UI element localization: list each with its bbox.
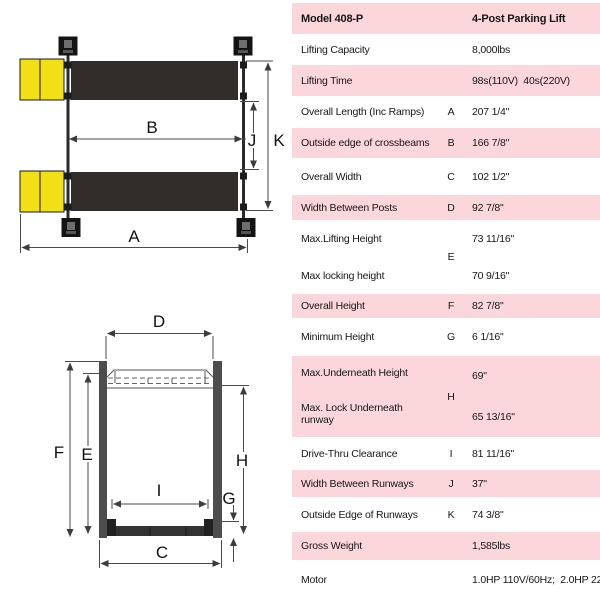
- spec-sheet: B J K A D: [0, 0, 600, 600]
- spec-label: Overall Height: [292, 300, 437, 312]
- post-bottom-left: [62, 218, 81, 237]
- spec-value: 1,585lbs: [465, 540, 600, 552]
- spec-value: 98s(110V) 40s(220V): [465, 75, 600, 87]
- table-row: Lifting Time 98s(110V) 40s(220V): [292, 65, 600, 96]
- spec-letter: F: [437, 300, 465, 312]
- spec-value: 207 1/4": [465, 106, 600, 118]
- table-row: Lifting Capacity 8,000lbs: [292, 34, 600, 65]
- spec-value: 92 7/8": [465, 202, 600, 214]
- front-post-right: [213, 361, 222, 538]
- dim-label-a: A: [128, 227, 140, 246]
- post-top-left: [59, 37, 78, 56]
- post-top-right: [234, 37, 253, 56]
- yellow-ramp-upper: [20, 59, 64, 100]
- table-row: Outside Edge of Runways K 74 3/8": [292, 497, 600, 532]
- spec-letter: J: [437, 478, 465, 490]
- spec-value: 73 11/16": [472, 233, 600, 245]
- spec-value: 70 9/16": [472, 270, 600, 282]
- runway-upper: [71, 61, 238, 100]
- front-post-left: [99, 361, 107, 538]
- front-view-diagram: D F: [0, 300, 290, 580]
- dim-label-f: F: [54, 443, 64, 462]
- dim-label-j: J: [248, 131, 257, 150]
- spec-letter: G: [437, 331, 465, 343]
- spec-letter: A: [437, 106, 465, 118]
- table-row: Outside edge of crossbeams B 166 7/8": [292, 128, 600, 158]
- spec-label: Outside Edge of Runways: [292, 509, 437, 521]
- table-row: Overall Length (Inc Ramps) A 207 1/4": [292, 96, 600, 128]
- bottom-crossbeam: [107, 519, 213, 536]
- spec-value: 65 13/16": [472, 411, 600, 423]
- spec-label: Max. Lock Underneath runway: [301, 402, 437, 426]
- table-row: Overall Height F 82 7/8": [292, 294, 600, 318]
- spec-label: Drive-Thru Clearance: [292, 448, 437, 460]
- spec-letter: D: [437, 202, 465, 214]
- table-row: Minimum Height G 6 1/16": [292, 318, 600, 356]
- spec-label: Lifting Capacity: [292, 44, 437, 56]
- spec-value: 1.0HP 110V/60Hz; 2.0HP 220V/60Hz: [465, 574, 600, 586]
- table-row: Motor 1.0HP 110V/60Hz; 2.0HP 220V/60Hz: [292, 560, 600, 600]
- spec-label: Overall Width: [292, 171, 437, 183]
- top-view-diagram: B J K A: [0, 0, 290, 268]
- runway-lower: [71, 172, 238, 211]
- table-row: Width Between Posts D 92 7/8": [292, 195, 600, 220]
- spec-label: Gross Weight: [292, 540, 437, 552]
- spec-value: 6 1/16": [465, 331, 600, 343]
- table-row-group-e: Max.Lifting Height Max locking height E …: [292, 220, 600, 294]
- dim-label-e: E: [81, 445, 92, 464]
- spec-label: Minimum Height: [292, 331, 437, 343]
- spec-letter: K: [437, 509, 465, 521]
- spec-label: Max locking height: [301, 270, 437, 282]
- spec-label: Overall Length (Inc Ramps): [292, 106, 437, 118]
- dim-label-h: H: [236, 451, 248, 470]
- spec-letter: E: [437, 251, 465, 263]
- table-row: Overall Width C 102 1/2": [292, 158, 600, 195]
- table-row: Drive-Thru Clearance I 81 11/16": [292, 437, 600, 470]
- raised-runway-section: [107, 370, 213, 388]
- spec-value: 37": [465, 478, 600, 490]
- spec-value: 8,000lbs: [465, 44, 600, 56]
- spec-value: 102 1/2": [465, 171, 600, 183]
- dim-label-b: B: [146, 118, 157, 137]
- spec-label: Max.Underneath Height: [301, 367, 437, 379]
- yellow-ramp-lower: [20, 171, 64, 212]
- spec-value: 69": [472, 370, 600, 382]
- table-row-group-h: Max.Underneath Height Max. Lock Undernea…: [292, 356, 600, 437]
- post-bottom-right: [237, 218, 256, 237]
- spec-letter: C: [437, 171, 465, 183]
- spec-value: 74 3/8": [465, 509, 600, 521]
- table-row: Width Between Runways J 37": [292, 470, 600, 497]
- spec-label: Outside edge of crossbeams: [292, 137, 437, 149]
- spec-label: Lifting Time: [292, 75, 437, 87]
- dim-label-d: D: [153, 312, 165, 331]
- table-row: Gross Weight 1,585lbs: [292, 532, 600, 560]
- dim-label-k: K: [273, 131, 285, 150]
- spec-label: Width Between Posts: [292, 202, 437, 214]
- product-name: 4-Post Parking Lift: [465, 13, 600, 25]
- spec-letter: I: [437, 448, 465, 460]
- dim-label-c: C: [156, 543, 168, 562]
- model-name: Model 408-P: [292, 13, 437, 25]
- table-header-row: Model 408-P 4-Post Parking Lift: [292, 3, 600, 34]
- spec-value: 81 11/16": [465, 448, 600, 460]
- spec-value: 82 7/8": [465, 300, 600, 312]
- spec-letter: B: [437, 137, 465, 149]
- spec-value: 166 7/8": [465, 137, 600, 149]
- dim-label-i: I: [157, 481, 162, 500]
- spec-table: Model 408-P 4-Post Parking Lift Lifting …: [292, 3, 600, 600]
- spec-letter: H: [437, 391, 465, 403]
- spec-label: Max.Lifting Height: [301, 233, 437, 245]
- spec-label: Motor: [292, 574, 437, 586]
- spec-label: Width Between Runways: [292, 478, 437, 490]
